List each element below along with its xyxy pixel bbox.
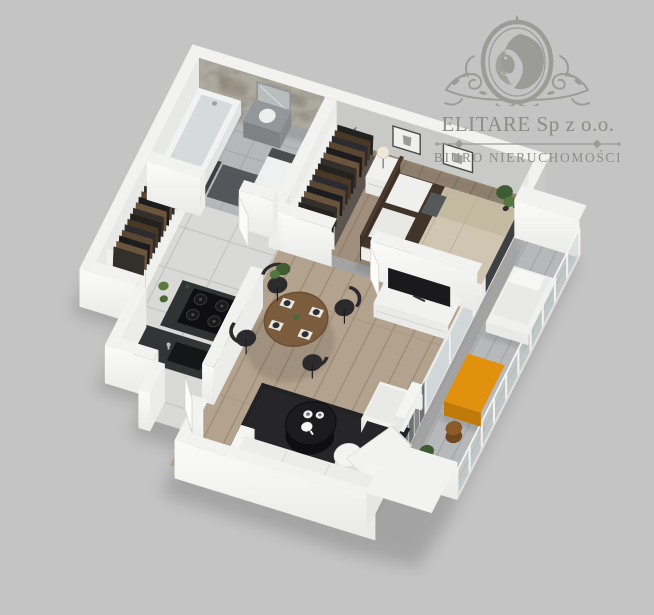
lion-head-icon xyxy=(495,34,543,89)
logo: ELITARE Sp z o.o. BIURO NIERUCHOMOŚCI xyxy=(428,14,628,166)
floorplan-render: ELITARE Sp z o.o. BIURO NIERUCHOMOŚCI xyxy=(0,0,654,615)
logo-divider xyxy=(434,139,622,149)
company-subtitle: BIURO NIERUCHOMOŚCI xyxy=(428,150,628,166)
lion-crest-icon xyxy=(428,14,628,106)
company-name: ELITARE Sp z o.o. xyxy=(428,112,628,137)
balcony-stool xyxy=(445,421,462,443)
